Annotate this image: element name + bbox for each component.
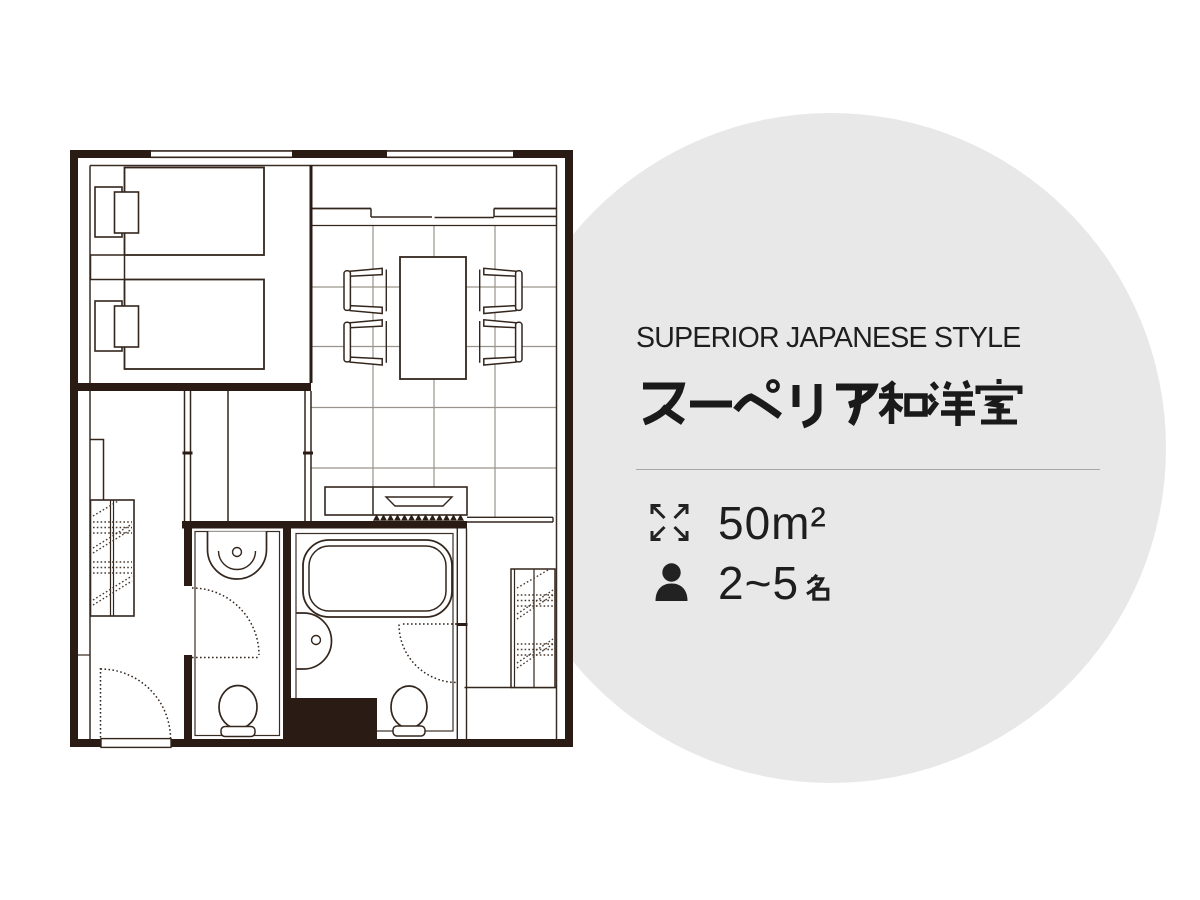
svg-text:2~5: 2~5 bbox=[718, 557, 799, 609]
svg-text:50m²: 50m² bbox=[718, 497, 827, 549]
svg-text:SUPERIOR JAPANESE STYLE: SUPERIOR JAPANESE STYLE bbox=[636, 322, 1021, 354]
